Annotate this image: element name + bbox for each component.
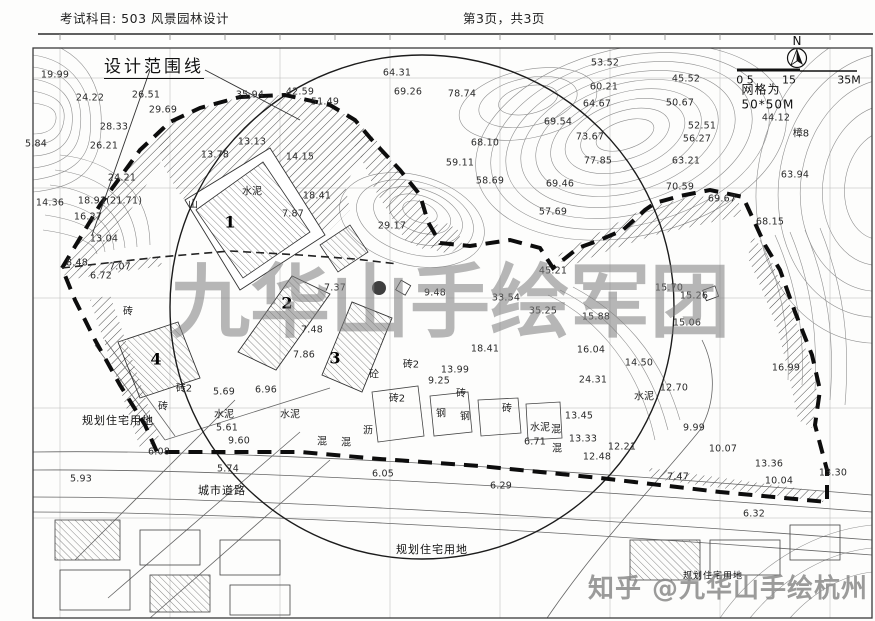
grid-size-note: 网格为50*50M: [742, 81, 831, 112]
ruler-ticks: [60, 34, 830, 40]
scale-tick-right: 35M: [837, 74, 861, 87]
north-label: N: [793, 34, 802, 48]
design-boundary-label: 设计范围线: [104, 52, 204, 79]
compass-north-icon: [788, 49, 807, 68]
scanned-exam-map-page: 考试科目: 503 风景园林设计 第3页，共3页: [0, 0, 875, 621]
